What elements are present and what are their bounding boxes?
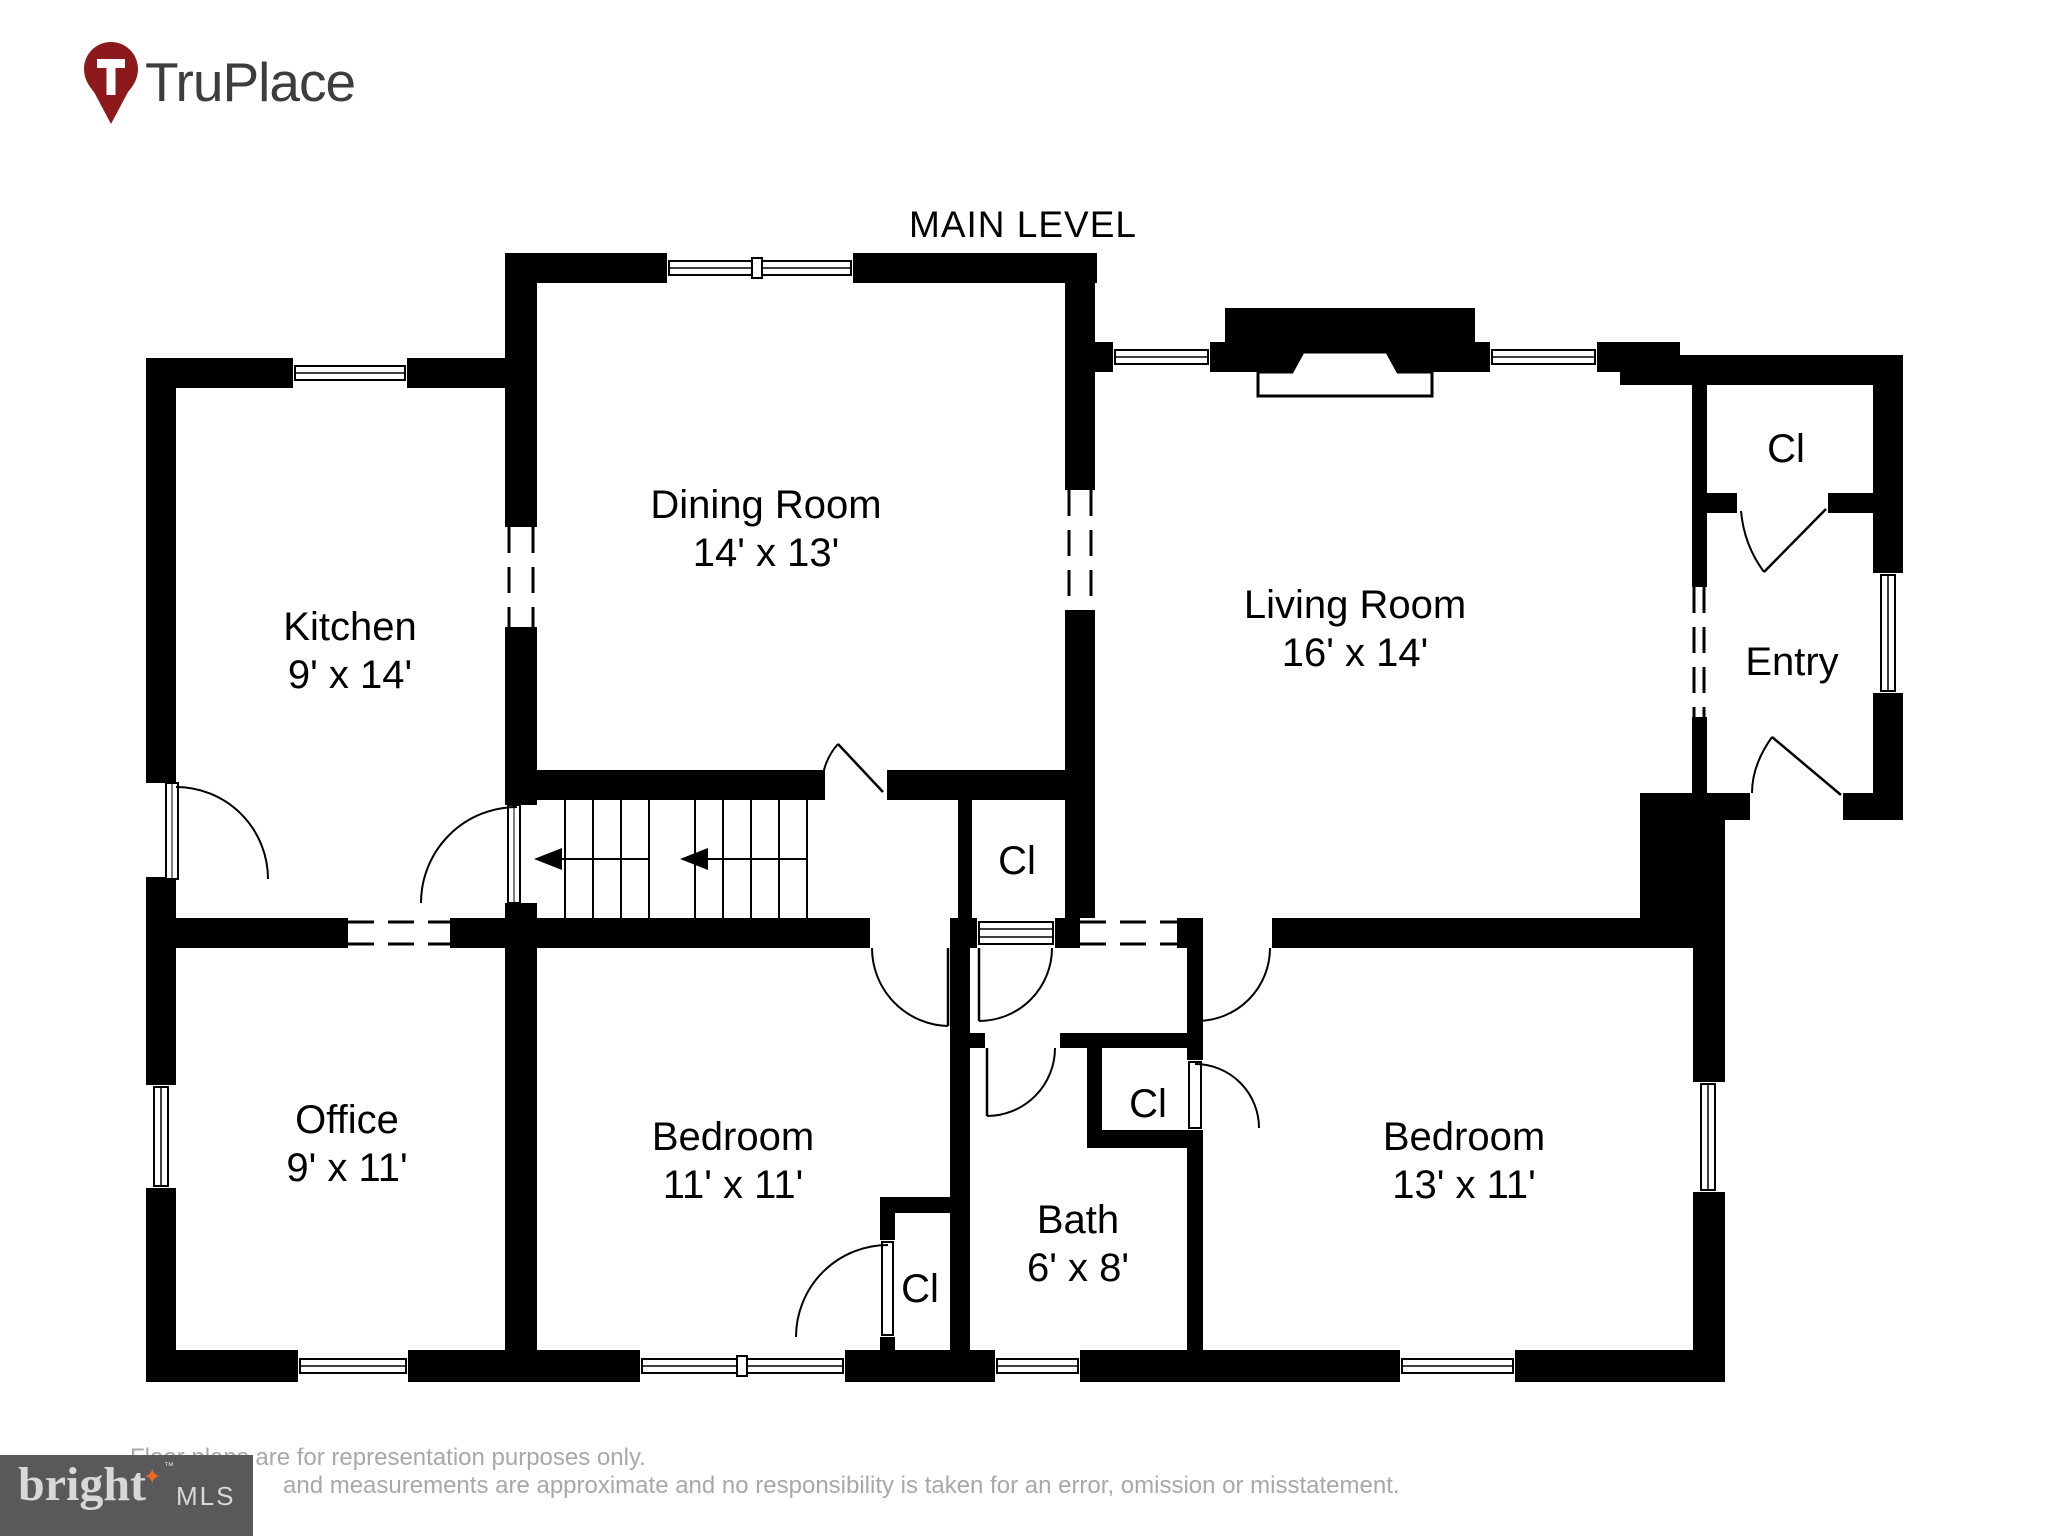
room-label-dining: Dining Room: [650, 483, 881, 527]
walls-layer: [146, 253, 1903, 1382]
room-label-living: Living Room: [1244, 583, 1466, 627]
room-label-entry: Entry: [1745, 640, 1838, 684]
closet-label-hall: Cl: [998, 839, 1036, 883]
stair-arrow-icon: [534, 848, 562, 870]
room-label-bath: Bath: [1037, 1198, 1119, 1242]
room-dims-bath: 6' x 8': [1027, 1246, 1129, 1290]
room-label-office: Office: [295, 1098, 399, 1142]
staircase: [534, 800, 807, 918]
room-dims-living: 16' x 14': [1282, 631, 1428, 675]
room-dims-bedroom-left: 11' x 11': [663, 1163, 804, 1207]
four-pointed-star-icon: ✦: [143, 1465, 161, 1490]
fireplace: [1190, 308, 1510, 396]
bright-mls-logo-text: bright: [18, 1457, 146, 1512]
map-pin-icon: [84, 42, 138, 124]
room-dims-bedroom-right: 13' x 11': [1392, 1163, 1536, 1207]
floor-plan-drawing: MAIN LEVEL Kitchen 9' x 14' Dining Room …: [0, 0, 2048, 1536]
room-dims-dining: 14' x 13': [693, 531, 839, 575]
bright-mls-logo: bright ✦ ™ MLS: [0, 1455, 253, 1536]
level-title: MAIN LEVEL: [909, 204, 1137, 245]
room-dims-kitchen: 9' x 14': [288, 653, 412, 697]
disclaimer-line-2: and measurements are approximate and no …: [283, 1472, 1400, 1500]
truplace-logo-text: TruPlace: [145, 42, 355, 122]
bright-mls-logo-suffix: MLS: [176, 1481, 235, 1512]
trademark-symbol: ™: [164, 1461, 174, 1472]
room-label-bedroom-left: Bedroom: [652, 1115, 814, 1159]
room-dims-office: 9' x 11': [286, 1146, 407, 1190]
room-label-bedroom-right: Bedroom: [1383, 1115, 1545, 1159]
windows-layer: [146, 253, 1903, 1382]
closet-label-bath: Cl: [1129, 1082, 1167, 1126]
closet-label-entry: Cl: [1767, 427, 1805, 471]
truplace-logo: TruPlace: [84, 42, 355, 124]
floor-plan-page: MAIN LEVEL Kitchen 9' x 14' Dining Room …: [0, 0, 2048, 1536]
closet-label-bedroom-left: Cl: [901, 1267, 939, 1311]
room-label-kitchen: Kitchen: [283, 605, 416, 649]
